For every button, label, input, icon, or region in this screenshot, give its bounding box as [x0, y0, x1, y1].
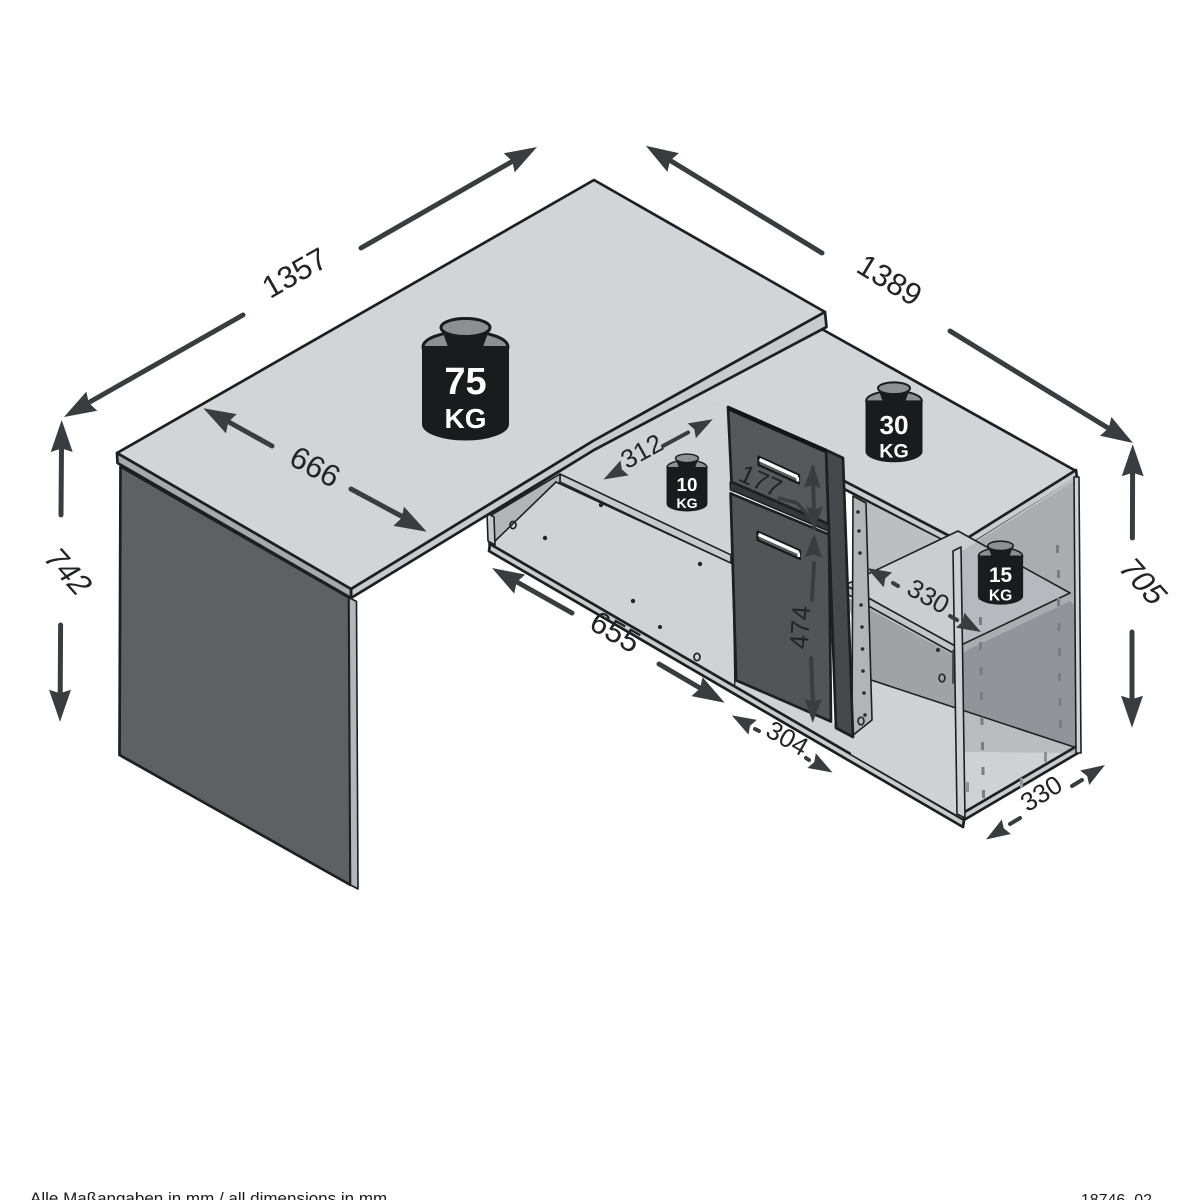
svg-text:KG: KG: [445, 403, 487, 434]
svg-text:474: 474: [784, 605, 817, 650]
svg-text:30: 30: [879, 410, 908, 440]
svg-text:10: 10: [677, 474, 698, 495]
svg-text:KG: KG: [879, 440, 908, 462]
svg-text:15: 15: [989, 564, 1012, 587]
svg-text:75: 75: [444, 361, 486, 403]
svg-text:KG: KG: [989, 588, 1012, 605]
svg-text:Alle Maßangaben in mm / all di: Alle Maßangaben in mm / all dimensions i…: [30, 1189, 387, 1200]
svg-text:KG: KG: [676, 495, 697, 511]
svg-text:18746_02: 18746_02: [1081, 1192, 1152, 1200]
